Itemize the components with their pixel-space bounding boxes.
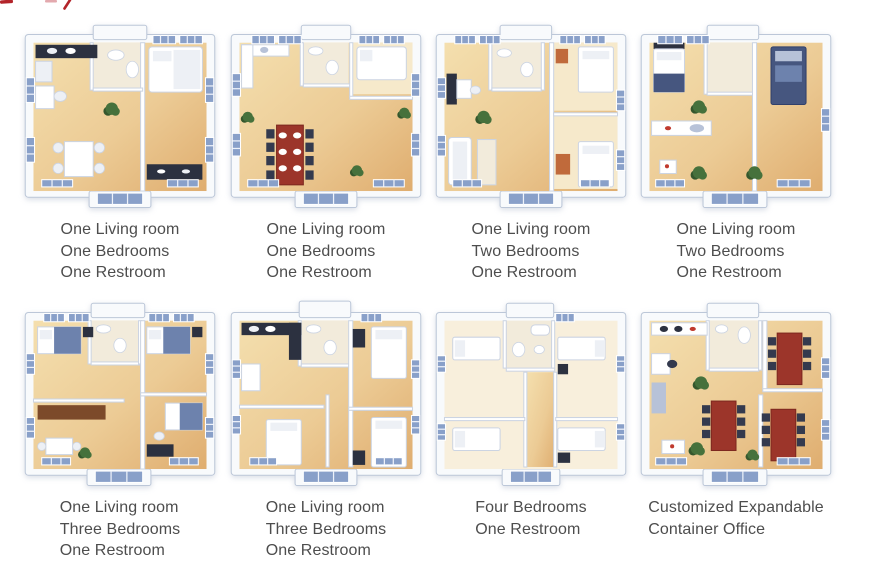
caption-line: Four Bedrooms <box>475 497 587 519</box>
caption-line: One Restroom <box>475 519 587 541</box>
floorplan-card-6: One Living room Three Bedrooms One Restr… <box>223 296 429 562</box>
floorplan-caption-1: One Living room One Bedrooms One Restroo… <box>17 219 223 284</box>
floorplan-card-1: One Living room One Bedrooms One Restroo… <box>17 18 223 284</box>
caption-line: Two Bedrooms <box>677 241 796 263</box>
floorplan-image-4 <box>633 18 839 214</box>
caption-line: One Living room <box>61 219 180 241</box>
floorplan-caption-6: One Living room Three Bedrooms One Restr… <box>223 497 429 562</box>
floorplan-caption-5: One Living room Three Bedrooms One Restr… <box>17 497 223 562</box>
caption-line: One Bedrooms <box>267 241 386 263</box>
floorplan-image-7 <box>428 296 634 492</box>
caption-line: One Restroom <box>677 262 796 284</box>
floorplan-image-5 <box>17 296 223 492</box>
caption-line: One Living room <box>472 219 591 241</box>
floorplan-card-7: Four Bedrooms One Restroom <box>428 296 634 540</box>
floorplan-card-5: One Living room Three Bedrooms One Restr… <box>17 296 223 562</box>
floorplan-caption-8: Customized Expandable Container Office <box>633 497 839 540</box>
cropped-title-fragment <box>0 0 84 11</box>
floorplan-card-8: Customized Expandable Container Office <box>633 296 839 540</box>
floorplan-card-3: One Living room Two Bedrooms One Restroo… <box>428 18 634 284</box>
caption-line: One Restroom <box>60 540 181 562</box>
floorplan-image-6 <box>223 296 429 492</box>
floorplan-caption-2: One Living room One Bedrooms One Restroo… <box>223 219 429 284</box>
caption-line: One Living room <box>267 219 386 241</box>
floorplan-gallery: One Living room One Bedrooms One Restroo… <box>0 0 888 570</box>
caption-line: Three Bedrooms <box>266 519 387 541</box>
floorplan-caption-3: One Living room Two Bedrooms One Restroo… <box>428 219 634 284</box>
caption-line: One Restroom <box>472 262 591 284</box>
floorplan-caption-7: Four Bedrooms One Restroom <box>428 497 634 540</box>
caption-line: One Living room <box>60 497 181 519</box>
caption-line: Two Bedrooms <box>472 241 591 263</box>
caption-line: One Restroom <box>266 540 387 562</box>
caption-line: One Restroom <box>267 262 386 284</box>
floorplan-image-1 <box>17 18 223 214</box>
floorplan-image-8 <box>633 296 839 492</box>
caption-line: Customized Expandable <box>648 497 824 519</box>
caption-line: Container Office <box>648 519 824 541</box>
caption-line: One Restroom <box>61 262 180 284</box>
floorplan-image-3 <box>428 18 634 214</box>
caption-line: One Living room <box>266 497 387 519</box>
floorplan-image-2 <box>223 18 429 214</box>
floorplan-card-2: One Living room One Bedrooms One Restroo… <box>223 18 429 284</box>
floorplan-card-4: One Living room Two Bedrooms One Restroo… <box>633 18 839 284</box>
caption-line: One Bedrooms <box>61 241 180 263</box>
caption-line: Three Bedrooms <box>60 519 181 541</box>
caption-line: One Living room <box>677 219 796 241</box>
floorplan-caption-4: One Living room Two Bedrooms One Restroo… <box>633 219 839 284</box>
